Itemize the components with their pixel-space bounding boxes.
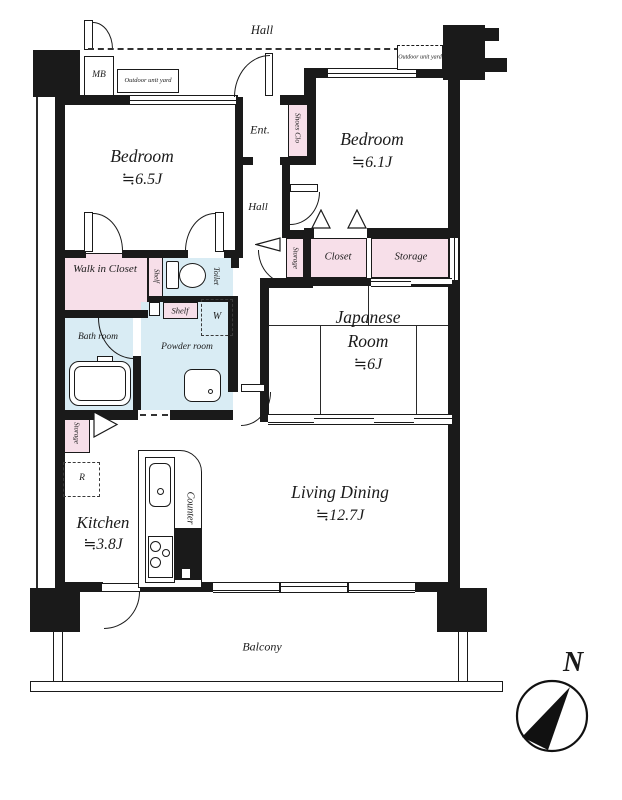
powder-label: Powder room	[156, 342, 218, 354]
shoes-closet-label: Shoes Clo	[293, 113, 302, 143]
window-right-wall	[449, 238, 459, 280]
storage-bedroom-label: Storage	[395, 250, 428, 263]
pipe-space-box	[149, 302, 160, 316]
living-dining-label: Living Dining ≒12.7J	[260, 482, 420, 526]
balcony-rail-bottom	[30, 681, 503, 692]
balcony-label: Balcony	[242, 640, 281, 655]
japanese-name: Japanese Room	[318, 306, 418, 353]
living-name: Living Dining	[260, 482, 420, 504]
pillar-right	[437, 588, 487, 632]
living-size: ≒12.7J	[260, 506, 420, 526]
bathtub-inner	[74, 366, 126, 401]
wall-corner-block	[443, 25, 485, 80]
wall-closet-south	[283, 278, 372, 286]
entrance-label: Ent.	[250, 123, 270, 138]
sliding-door-japanese-living	[268, 414, 452, 425]
wall-kitchen-north	[170, 410, 233, 420]
toilet-tank	[166, 261, 179, 289]
wall-entrance-left	[235, 97, 243, 252]
wall-corner-block	[33, 50, 80, 97]
site-boundary-line	[36, 97, 38, 588]
door-arc-mb	[93, 22, 113, 49]
wall-stub	[485, 58, 507, 72]
wall-hall-east	[282, 165, 290, 238]
folding-door-icon	[93, 411, 120, 439]
japanese-room-label: Japanese Room ≒6J	[318, 306, 418, 375]
door-leaf-living	[241, 384, 265, 392]
bedroom2-size: ≒6.1J	[312, 153, 432, 173]
mb-label: MB	[92, 70, 106, 82]
door-arc-bedroom1	[185, 213, 215, 251]
door-leaf-wic	[84, 212, 93, 252]
washer-label: W	[213, 311, 221, 324]
walk-in-closet-label: Walk in Closet	[68, 263, 142, 277]
window-bedroom1	[130, 95, 236, 105]
kitchen-label: Kitchen ≒3.8J	[44, 512, 162, 555]
door-arc-entrance	[234, 55, 270, 97]
closet-label: Closet	[325, 250, 352, 263]
counter-end-box	[181, 568, 191, 579]
wall-bedroom2-south	[367, 228, 450, 238]
compass	[502, 658, 612, 768]
wall-bedroom1-south	[57, 250, 86, 258]
wall-right	[448, 78, 460, 590]
compass-north-label: N	[563, 645, 583, 680]
storage-kitchen-label: Storage	[72, 422, 81, 444]
wall-ent-hall	[280, 157, 316, 165]
sliding-door-powder	[138, 411, 170, 419]
common-hall-boundary	[88, 48, 400, 50]
kitchen-size: ≒3.8J	[44, 535, 162, 554]
floor-plan: N Hall MB Outdoor unit yard Outdoor unit…	[0, 0, 622, 800]
japanese-size: ≒6J	[318, 355, 418, 375]
pillar-left	[30, 588, 80, 632]
folding-door-icon	[255, 237, 282, 253]
storage-hall-label: Storage	[291, 247, 300, 269]
powder-sink	[184, 369, 221, 402]
inner-hall-label: Hall	[248, 201, 268, 215]
balcony-rail-right	[458, 632, 468, 682]
wall-seg	[231, 252, 239, 268]
kitchen-name: Kitchen	[44, 512, 162, 533]
stove-burner	[162, 549, 170, 557]
counter-label: Counter	[183, 492, 196, 525]
toilet-bowl	[179, 263, 206, 288]
wall-seg	[304, 238, 311, 278]
common-hall-label: Hall	[251, 23, 273, 39]
wall-bath-east	[133, 356, 141, 410]
stove-burner	[150, 557, 161, 568]
compass-graphic	[502, 658, 612, 768]
shelf-tall-label: Shelf	[151, 269, 160, 283]
bedroom2-name: Bedroom	[312, 129, 432, 151]
bedroom1-size: ≒6.5J	[82, 170, 202, 190]
wall-ent-hall	[235, 157, 253, 165]
door-leaf-kitchen-balcony	[101, 583, 141, 592]
door-leaf-bedroom1	[215, 212, 224, 252]
kitchen-sink	[149, 463, 171, 507]
wall-stub	[485, 28, 499, 41]
sink-drain	[208, 389, 213, 394]
bedroom1-label: Bedroom ≒6.5J	[82, 146, 202, 190]
door-leaf-mb	[84, 20, 93, 50]
outdoor-unit-yard-left-label: Outdoor unit yard	[124, 77, 171, 85]
folding-door-icon	[311, 209, 331, 229]
door-arc-wic	[93, 213, 123, 251]
toilet-label: Toilet	[211, 267, 221, 285]
outdoor-unit-yard-right-label: Outdoor unit yard	[398, 54, 441, 62]
kitchen-sink-drain	[157, 488, 164, 495]
bedroom2-label: Bedroom ≒6.1J	[312, 129, 432, 173]
shelf-small-label: Shelf	[172, 305, 189, 316]
bedroom1-name: Bedroom	[82, 146, 202, 168]
door-arc-kitchen-balcony	[104, 592, 140, 629]
sliding-door-storage	[371, 278, 452, 287]
folding-door-icon	[347, 209, 367, 229]
door-leaf-bedroom2	[290, 184, 318, 192]
wall-seg	[304, 228, 314, 238]
balcony-rail-left	[53, 632, 63, 682]
bath-label: Bath room	[77, 332, 119, 344]
wall-wic-south	[57, 310, 148, 318]
wall-bedroom1-south	[122, 250, 188, 258]
balcony-window	[213, 582, 415, 593]
fridge-label: R	[79, 473, 85, 485]
